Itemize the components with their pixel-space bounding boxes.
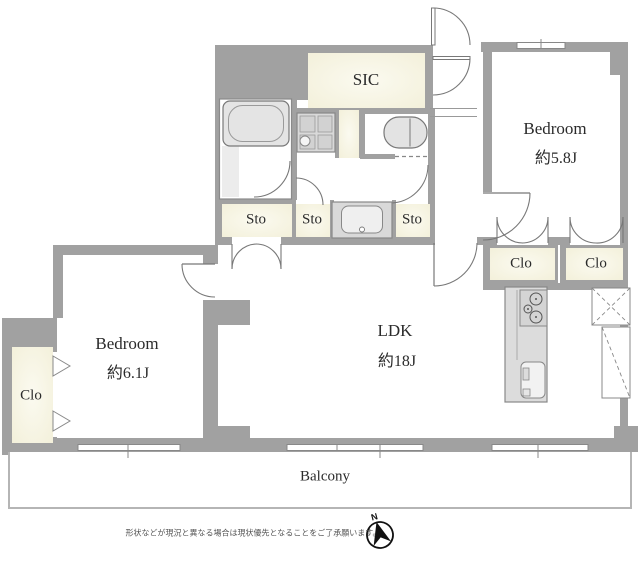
bedroom-right-label: Bedroom	[523, 119, 586, 139]
balcony-label: Balcony	[300, 469, 350, 486]
bathtub	[223, 101, 289, 146]
cupboard-space	[602, 327, 630, 398]
clo-right-1-label: Clo	[510, 256, 532, 273]
toilet	[384, 117, 428, 203]
refrigerator-space	[592, 288, 630, 325]
window-bedroom-right-top	[517, 39, 565, 49]
sto-hall-label: Sto	[302, 212, 322, 229]
entrance-step	[430, 109, 477, 117]
window-ldk-2	[492, 444, 588, 458]
washbasin	[332, 202, 392, 238]
stove	[520, 290, 547, 326]
bath-counter	[222, 146, 239, 197]
kitchen-sink	[521, 362, 545, 398]
bedroom-left-label: Bedroom	[95, 334, 158, 354]
clo-left-label: Clo	[20, 388, 42, 405]
floor-plan: N SIC Sto Sto Sto Clo Clo Clo Bedroom 約5…	[0, 0, 640, 562]
drain-circle	[300, 136, 310, 146]
clo-right-1-doors	[497, 217, 548, 243]
clo-right-2-doors	[570, 217, 623, 243]
hall-ldk-door	[434, 243, 477, 286]
kitchen-counter	[505, 287, 547, 402]
bedroom-right-area: 約5.8J	[535, 144, 577, 168]
compass-north-label: N	[370, 511, 379, 522]
ldk-area: 約18J	[378, 347, 416, 371]
entrance-door	[432, 8, 471, 45]
window-bedroom-left	[78, 444, 180, 458]
bedroom-right-door	[483, 193, 530, 240]
sto-hall-door-arc	[296, 178, 323, 205]
clo-right-2-label: Clo	[585, 256, 607, 273]
washing-machine-pan	[297, 113, 335, 152]
sic-door	[433, 57, 470, 96]
bathroom-unit	[220, 99, 292, 199]
disclaimer-text: 形状などが現況と異なる場合は現状優先となることをご了承願います。	[126, 528, 381, 539]
ldk-label: LDK	[378, 321, 413, 341]
toilet-door-arc	[390, 165, 428, 203]
bedroom-left-area: 約6.1J	[107, 359, 149, 383]
sto-bath-doors	[232, 244, 281, 269]
sto-right-label: Sto	[402, 212, 422, 229]
clo-left-folding-doors	[53, 356, 70, 431]
sto-bath-label: Sto	[246, 212, 266, 229]
sic-label: SIC	[353, 70, 379, 90]
window-ldk-1	[287, 444, 423, 458]
bedroom-left-door	[182, 264, 215, 297]
